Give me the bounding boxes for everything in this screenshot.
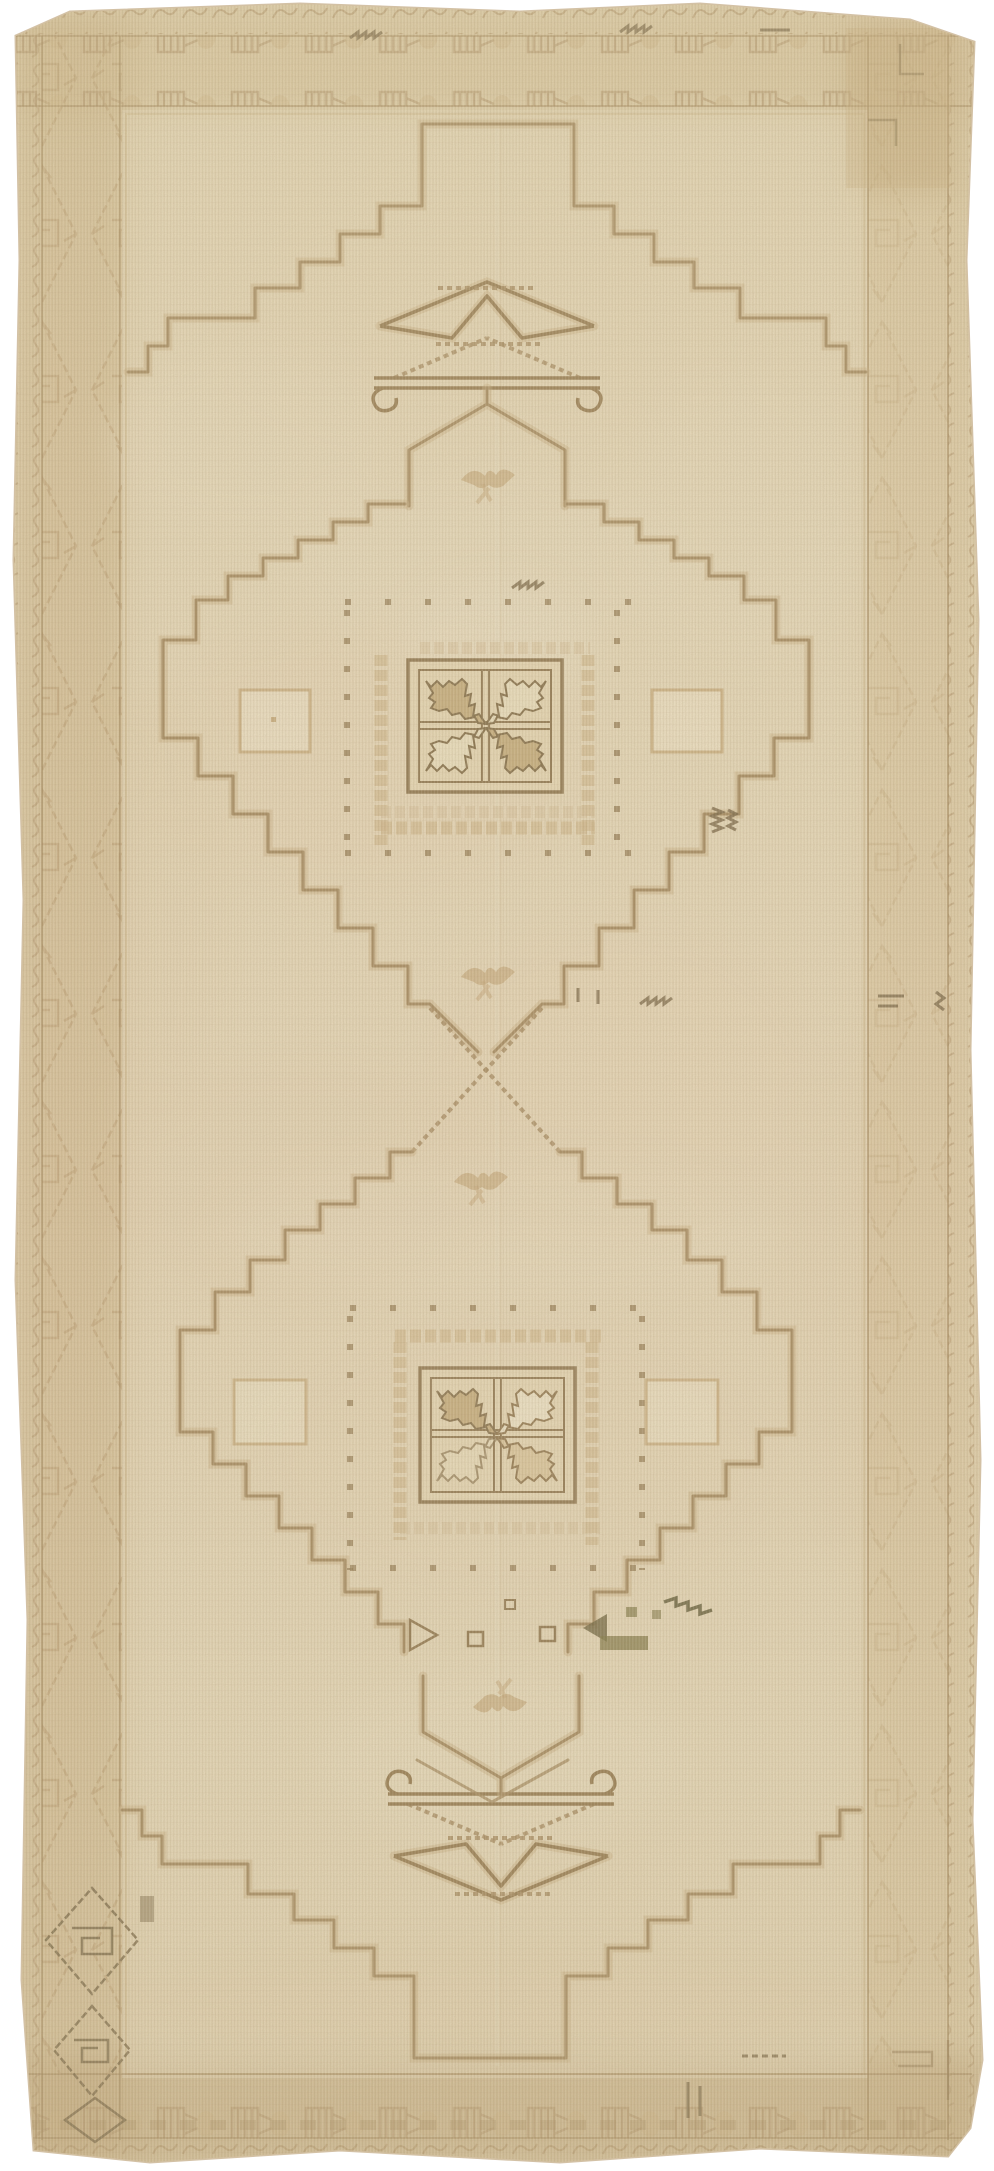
texture-overlay [0,0,994,2171]
rug-photo-stage: Vintage faded Anatolian Oushak rug with … [0,0,994,2171]
rug-photo: Vintage faded Anatolian Oushak rug with … [0,0,994,2171]
